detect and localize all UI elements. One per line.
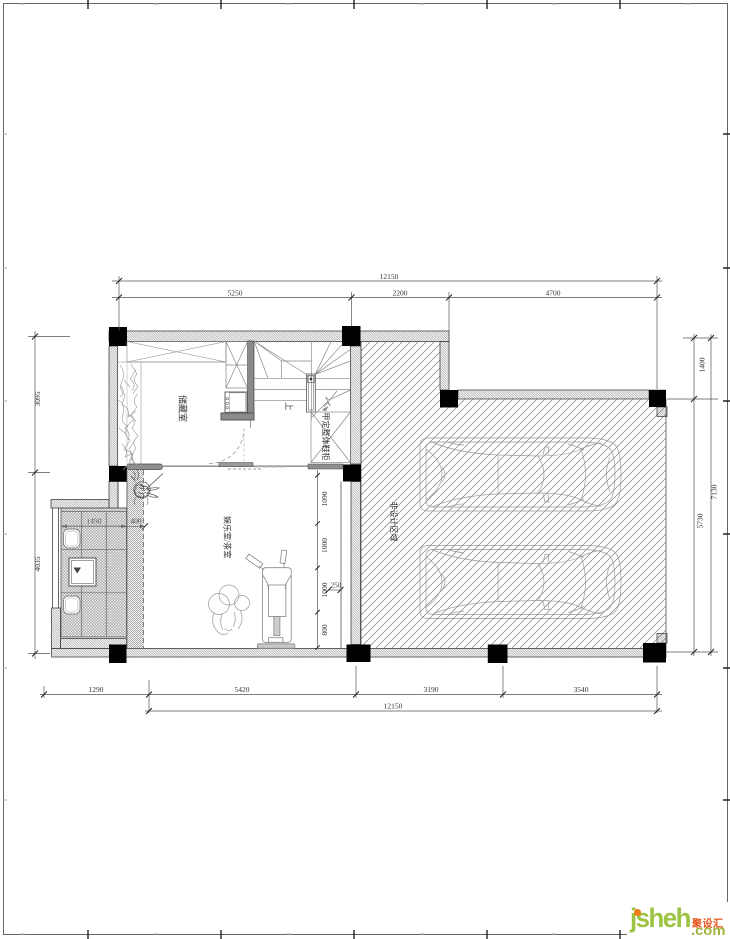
svg-text:3190: 3190 [424, 685, 439, 694]
svg-text:储藏室: 储藏室 [178, 395, 189, 422]
svg-text:1000: 1000 [320, 538, 329, 553]
svg-text:甲定整体鞋柜: 甲定整体鞋柜 [321, 413, 331, 461]
svg-text:12150: 12150 [380, 272, 399, 281]
svg-text:2200: 2200 [393, 289, 408, 298]
svg-text:3095: 3095 [33, 391, 42, 406]
svg-text:3540: 3540 [574, 685, 589, 694]
svg-text:5730: 5730 [696, 513, 705, 528]
svg-text:800: 800 [320, 624, 329, 636]
svg-text:1090: 1090 [320, 491, 329, 506]
svg-text:12150: 12150 [384, 702, 403, 711]
svg-text:5420: 5420 [235, 685, 250, 694]
svg-text:1000: 1000 [320, 582, 329, 597]
svg-text:4700: 4700 [546, 289, 561, 298]
svg-text:4035: 4035 [33, 556, 42, 571]
svg-text:1290: 1290 [89, 685, 104, 694]
svg-text:娱乐室/茶室: 娱乐室/茶室 [223, 516, 233, 558]
svg-text:非设计区域: 非设计区域 [389, 502, 399, 542]
svg-text:上: 上 [284, 402, 294, 411]
svg-text:250: 250 [331, 582, 342, 590]
svg-text:7130: 7130 [710, 484, 719, 499]
svg-text:1400: 1400 [698, 357, 707, 372]
svg-text:5250: 5250 [228, 289, 243, 298]
